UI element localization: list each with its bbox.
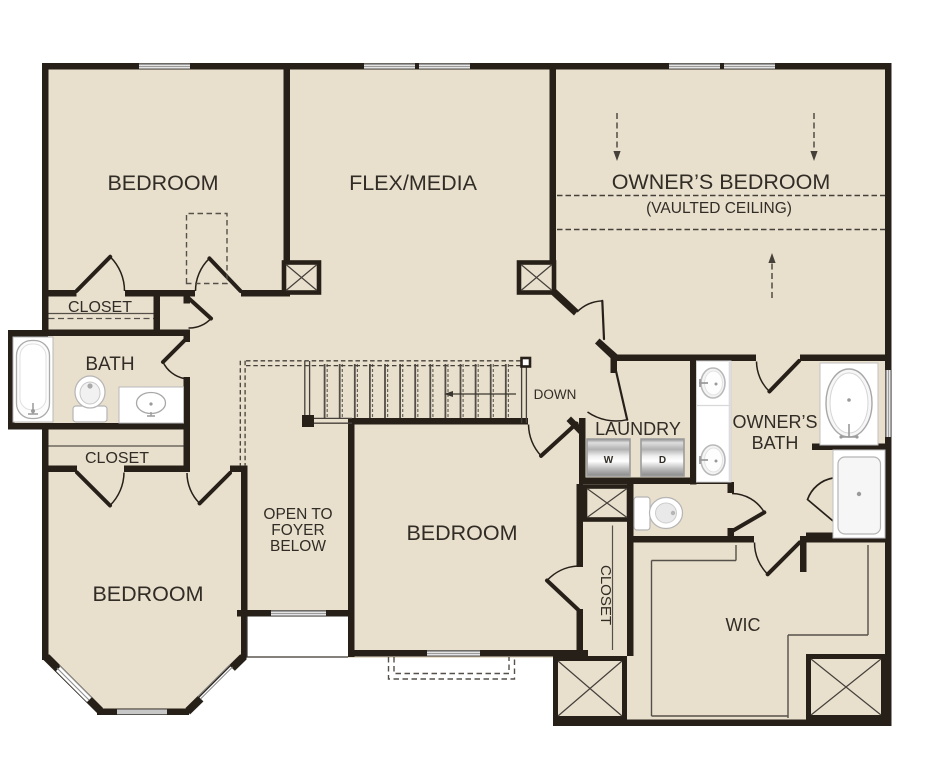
svg-text:OPEN TO: OPEN TO [263,506,332,523]
svg-text:BELOW: BELOW [270,538,326,555]
svg-text:CLOSET: CLOSET [85,450,149,467]
svg-text:D: D [659,455,666,466]
svg-text:CLOSET: CLOSET [68,299,132,316]
svg-text:OWNER’S BEDROOM: OWNER’S BEDROOM [612,170,831,194]
svg-text:BATH: BATH [85,354,134,375]
svg-text:OWNER’S: OWNER’S [733,412,818,432]
svg-text:DOWN: DOWN [534,387,577,402]
svg-text:LAUNDRY: LAUNDRY [595,419,681,439]
svg-text:BATH: BATH [752,433,799,453]
svg-text:BEDROOM: BEDROOM [107,171,218,195]
svg-text:FOYER: FOYER [271,522,324,539]
svg-text:(VAULTED CEILING): (VAULTED CEILING) [646,200,792,217]
svg-text:WIC: WIC [726,615,761,635]
svg-text:CLOSET: CLOSET [597,565,614,625]
svg-text:W: W [604,455,614,466]
svg-text:FLEX/MEDIA: FLEX/MEDIA [349,171,477,195]
svg-text:BEDROOM: BEDROOM [406,521,517,545]
svg-text:BEDROOM: BEDROOM [92,582,203,606]
